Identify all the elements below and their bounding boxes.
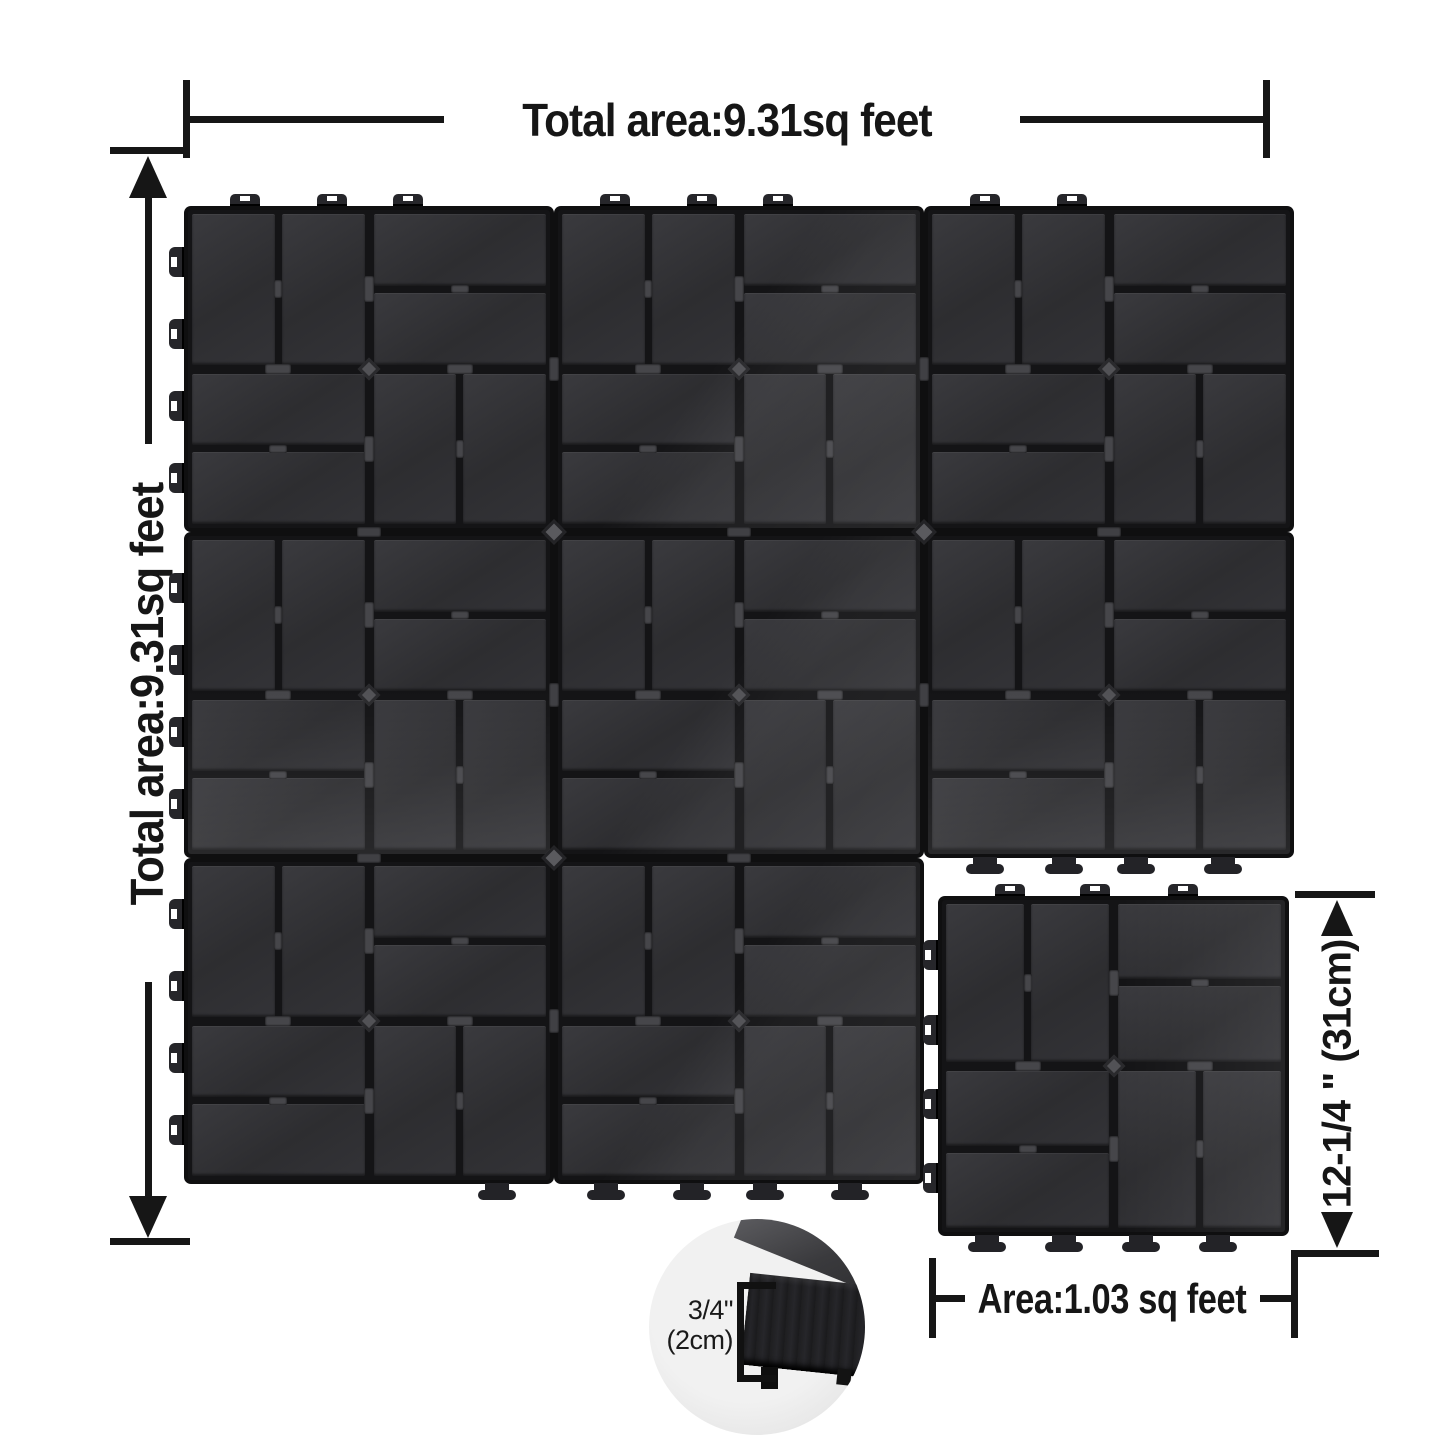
tile-slat-vertical <box>833 1026 916 1177</box>
tile-slat-horizontal <box>932 700 1105 772</box>
slat-gap-clip <box>269 1097 287 1105</box>
tile-slat-vertical <box>1031 904 1109 1062</box>
seam-connector-clip <box>727 527 751 537</box>
slat-gap-clip <box>821 937 839 945</box>
slat-gap-clip <box>821 611 839 619</box>
quadrant-gap-clip <box>364 1088 374 1114</box>
interlock-tab-top <box>1168 884 1198 896</box>
slat-gap-clip <box>826 766 834 784</box>
seam-connector-clip <box>919 357 929 381</box>
interlock-foot-base <box>1204 864 1242 874</box>
interlock-tab-top <box>317 194 347 206</box>
quadrant-gap-clip <box>1109 1136 1119 1162</box>
tile-slat-vertical <box>1022 214 1105 365</box>
slat-gap-clip <box>644 606 652 624</box>
seam-connector-clip <box>1097 527 1121 537</box>
slat-gap-clip <box>1024 974 1032 992</box>
interlock-tab-left <box>169 319 184 349</box>
quadrant-gap-clip <box>734 762 744 788</box>
interlock-foot-base <box>1117 864 1155 874</box>
quadrant-gap-clip <box>265 364 291 374</box>
tile-slat-vertical <box>946 904 1024 1062</box>
tile-slat-horizontal <box>562 374 735 446</box>
quadrant-gap-clip <box>364 436 374 462</box>
quadrant-gap-clip <box>635 690 661 700</box>
slat-gap-clip <box>1191 611 1209 619</box>
interlock-tab-left <box>169 1043 184 1073</box>
slat-gap-clip <box>1196 766 1204 784</box>
quadrant-gap-clip <box>734 1088 744 1114</box>
interlock-tab-left <box>923 1163 938 1193</box>
slat-gap-clip <box>1009 771 1027 779</box>
interlock-tab-left <box>169 971 184 1001</box>
tile-slat-horizontal <box>192 700 365 772</box>
interlock-tab-top <box>687 194 717 206</box>
deck-tile <box>558 210 920 528</box>
tile-slat-horizontal <box>946 1153 1109 1228</box>
tile-slat-horizontal <box>1114 293 1287 365</box>
tile-slat-vertical <box>833 374 916 525</box>
tile-slat-horizontal <box>1118 904 1281 979</box>
tile-slat-vertical <box>744 1026 827 1177</box>
quadrant-gap-clip <box>265 1016 291 1026</box>
tile-slat-horizontal <box>374 945 547 1017</box>
deck-tile <box>558 862 920 1180</box>
slat-gap-clip <box>639 771 657 779</box>
tile-slat-vertical <box>652 866 735 1017</box>
seam-connector-clip <box>357 853 381 863</box>
interlock-tab-left <box>169 789 184 819</box>
tile-slat-vertical <box>374 374 457 525</box>
quadrant-gap-clip <box>1187 1061 1213 1071</box>
tile-slat-vertical <box>1118 1071 1196 1229</box>
seam-connector-clip <box>727 853 751 863</box>
quadrant-gap-clip <box>1104 276 1114 302</box>
tile-slat-vertical <box>282 214 365 365</box>
tile-slat-vertical <box>562 214 645 365</box>
slat-gap-clip <box>269 445 287 453</box>
quadrant-gap-clip <box>265 690 291 700</box>
seam-connector-clip <box>919 683 929 707</box>
tile-slat-horizontal <box>932 374 1105 446</box>
interlock-tab-left <box>169 463 184 493</box>
tile-slat-vertical <box>463 700 546 851</box>
tile-slat-horizontal <box>932 452 1105 524</box>
interlock-tab-top <box>393 194 423 206</box>
interlock-tab-left <box>169 1115 184 1145</box>
interlock-tab-top <box>995 884 1025 896</box>
quadrant-gap-clip <box>817 1016 843 1026</box>
quadrant-gap-clip <box>635 1016 661 1026</box>
tile-slat-horizontal <box>946 1071 1109 1146</box>
seam-connector-clip <box>357 527 381 537</box>
deck-tile <box>188 862 550 1180</box>
deck-tile-dimension-diagram: Total area:9.31sq feet Total area:9.31sq… <box>0 0 1445 1445</box>
quadrant-gap-clip <box>364 276 374 302</box>
interlock-foot-base <box>478 1190 516 1200</box>
quadrant-gap-clip <box>447 690 473 700</box>
interlock-foot-base <box>1122 1242 1160 1252</box>
tile-slat-vertical <box>374 1026 457 1177</box>
tile-slat-vertical <box>1203 1071 1281 1229</box>
tile-slat-horizontal <box>192 778 365 850</box>
tile-slat-horizontal <box>744 619 917 691</box>
interlock-tab-left <box>923 1015 938 1045</box>
interlock-tab-top <box>1080 884 1110 896</box>
interlock-tab-left <box>923 940 938 970</box>
tile-slat-horizontal <box>192 452 365 524</box>
quadrant-gap-clip <box>447 1016 473 1026</box>
quadrant-gap-clip <box>1104 436 1114 462</box>
tile-slat-horizontal <box>374 540 547 612</box>
quadrant-gap-clip <box>734 276 744 302</box>
tile-slat-vertical <box>652 214 735 365</box>
tile-slat-vertical <box>374 700 457 851</box>
tile-slat-horizontal <box>562 452 735 524</box>
tile-slat-horizontal <box>1114 540 1287 612</box>
tile-slat-vertical <box>192 214 275 365</box>
tile-slat-vertical <box>1203 700 1286 851</box>
tile-slat-vertical <box>463 374 546 525</box>
tile-slat-vertical <box>562 866 645 1017</box>
tile-slat-vertical <box>192 540 275 691</box>
slat-gap-clip <box>1196 1140 1204 1158</box>
interlock-foot-base <box>1045 1242 1083 1252</box>
seam-connector-clip <box>549 683 559 707</box>
tile-slat-vertical <box>562 540 645 691</box>
tile-slat-horizontal <box>1114 214 1287 286</box>
tile-slat-horizontal <box>192 374 365 446</box>
slat-gap-clip <box>1191 979 1209 987</box>
thickness-label: 3/4" (2cm) <box>649 1295 733 1355</box>
slat-gap-clip <box>274 280 282 298</box>
slat-gap-clip <box>644 280 652 298</box>
thickness-bracket <box>737 1282 776 1382</box>
tile-edge-foot-2 <box>836 1368 852 1385</box>
quadrant-gap-clip <box>734 928 744 954</box>
interlock-tab-left <box>169 645 184 675</box>
quadrant-gap-clip <box>1015 1061 1041 1071</box>
quadrant-gap-clip <box>364 928 374 954</box>
quadrant-gap-clip <box>1109 970 1119 996</box>
interlock-tab-left <box>169 899 184 929</box>
slat-gap-clip <box>1196 440 1204 458</box>
slat-gap-clip <box>456 440 464 458</box>
seam-connector-clip <box>549 357 559 381</box>
interlock-foot-base <box>966 864 1004 874</box>
thickness-cm-label: (2cm) <box>649 1325 733 1355</box>
interlock-foot-base <box>1199 1242 1237 1252</box>
interlock-foot-base <box>968 1242 1006 1252</box>
tile-slat-vertical <box>652 540 735 691</box>
deck-tile <box>558 536 920 854</box>
tile-slat-horizontal <box>374 293 547 365</box>
slat-gap-clip <box>1014 280 1022 298</box>
quadrant-gap-clip <box>364 602 374 628</box>
tile-slat-horizontal <box>562 1104 735 1176</box>
tile-slat-vertical <box>744 700 827 851</box>
tile-slat-horizontal <box>744 293 917 365</box>
interlock-tab-top <box>763 194 793 206</box>
slat-gap-clip <box>269 771 287 779</box>
slat-gap-clip <box>274 606 282 624</box>
tile-slat-horizontal <box>374 214 547 286</box>
tile-slat-horizontal <box>562 1026 735 1098</box>
tile-slat-vertical <box>282 866 365 1017</box>
quadrant-gap-clip <box>734 436 744 462</box>
interlock-tab-left <box>169 717 184 747</box>
interlock-tab-left <box>169 391 184 421</box>
slat-gap-clip <box>274 932 282 950</box>
interlock-foot-base <box>746 1190 784 1200</box>
slat-gap-clip <box>826 440 834 458</box>
interlock-foot-base <box>831 1190 869 1200</box>
deck-tile <box>188 536 550 854</box>
interlock-tab-left <box>923 1089 938 1119</box>
tile-slat-vertical <box>463 1026 546 1177</box>
deck-tile <box>188 210 550 528</box>
slat-gap-clip <box>456 766 464 784</box>
interlock-tab-top <box>230 194 260 206</box>
tile-slat-horizontal <box>374 866 547 938</box>
tile-slat-horizontal <box>1118 986 1281 1061</box>
thickness-inch-label: 3/4" <box>649 1295 733 1325</box>
interlock-tab-top <box>970 194 1000 206</box>
tile-slat-vertical <box>932 214 1015 365</box>
interlock-tab-top <box>1057 194 1087 206</box>
interlock-foot-base <box>587 1190 625 1200</box>
tile-slat-horizontal <box>744 540 917 612</box>
tile-slat-horizontal <box>744 945 917 1017</box>
tile-slat-vertical <box>1203 374 1286 525</box>
quadrant-gap-clip <box>447 364 473 374</box>
quadrant-gap-clip <box>1187 690 1213 700</box>
slat-gap-clip <box>644 932 652 950</box>
seam-connector-clip <box>549 1009 559 1033</box>
interlock-foot-base <box>673 1190 711 1200</box>
slat-gap-clip <box>639 445 657 453</box>
interlock-tab-top <box>600 194 630 206</box>
deck-tile <box>928 210 1290 528</box>
tile-slat-horizontal <box>562 700 735 772</box>
tile-slat-vertical <box>833 700 916 851</box>
deck-tile <box>928 536 1290 854</box>
tile-slat-horizontal <box>744 214 917 286</box>
interlock-tab-left <box>169 573 184 603</box>
quadrant-gap-clip <box>817 364 843 374</box>
slat-gap-clip <box>821 285 839 293</box>
tile-slat-vertical <box>1114 374 1197 525</box>
tile-slat-horizontal <box>192 1026 365 1098</box>
thickness-inset: 3/4" (2cm) <box>649 1219 865 1435</box>
tile-slat-vertical <box>932 540 1015 691</box>
interlock-foot-base <box>1045 864 1083 874</box>
quadrant-gap-clip <box>364 762 374 788</box>
slat-gap-clip <box>826 1092 834 1110</box>
quadrant-gap-clip <box>734 602 744 628</box>
tile-slat-vertical <box>1114 700 1197 851</box>
tile-slat-horizontal <box>932 778 1105 850</box>
tile-slat-vertical <box>1022 540 1105 691</box>
tile-slat-horizontal <box>744 866 917 938</box>
quadrant-gap-clip <box>1104 762 1114 788</box>
tile-slat-vertical <box>192 866 275 1017</box>
slat-gap-clip <box>1019 1145 1037 1153</box>
slat-gap-clip <box>451 285 469 293</box>
tile-slat-vertical <box>282 540 365 691</box>
quadrant-gap-clip <box>1005 690 1031 700</box>
deck-tile <box>942 900 1285 1232</box>
interlock-tab-left <box>169 247 184 277</box>
slat-gap-clip <box>1014 606 1022 624</box>
slat-gap-clip <box>451 937 469 945</box>
tile-slat-horizontal <box>374 619 547 691</box>
tile-slat-vertical <box>744 374 827 525</box>
slat-gap-clip <box>451 611 469 619</box>
slat-gap-clip <box>456 1092 464 1110</box>
quadrant-gap-clip <box>1104 602 1114 628</box>
quadrant-gap-clip <box>1005 364 1031 374</box>
quadrant-gap-clip <box>635 364 661 374</box>
slat-gap-clip <box>1191 285 1209 293</box>
tile-slat-horizontal <box>192 1104 365 1176</box>
tile-slat-horizontal <box>562 778 735 850</box>
slat-gap-clip <box>639 1097 657 1105</box>
tile-slat-horizontal <box>1114 619 1287 691</box>
quadrant-gap-clip <box>817 690 843 700</box>
quadrant-gap-clip <box>1187 364 1213 374</box>
slat-gap-clip <box>1009 445 1027 453</box>
